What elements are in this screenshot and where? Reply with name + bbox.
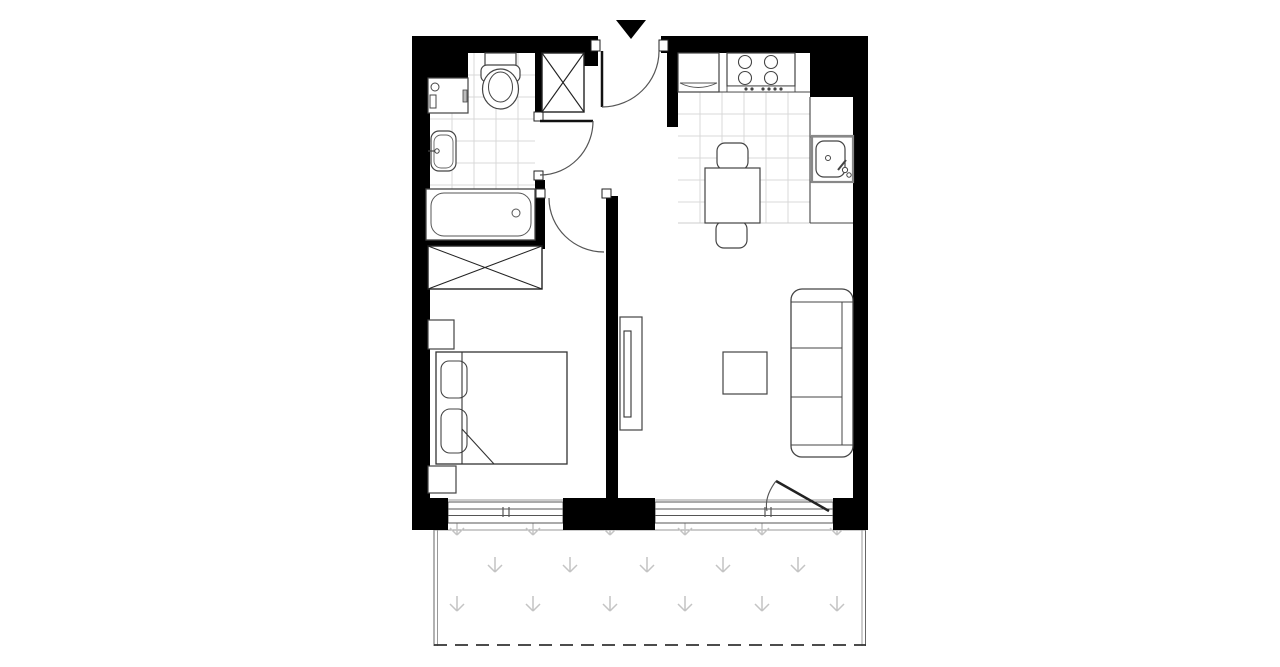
- stove-knob: [744, 87, 747, 90]
- stove-knob: [773, 87, 776, 90]
- stove-knob: [767, 87, 770, 90]
- corner-shaft: [412, 36, 468, 78]
- kitchen-faucet-spout: [847, 173, 851, 177]
- kitchen-faucet-base: [842, 167, 847, 172]
- kitchen-wall-stub: [667, 36, 678, 127]
- bottom-wall-mid-block: [563, 498, 655, 530]
- bedroom-window: [448, 502, 563, 523]
- fridge: [678, 53, 719, 92]
- floor-plan: [0, 0, 1280, 667]
- left-wall: [412, 36, 430, 502]
- top-right-block: [810, 36, 868, 97]
- bathroom-jamb-top: [534, 112, 543, 121]
- nightstand-bottom: [428, 466, 456, 493]
- stove: [727, 53, 795, 86]
- dining-chair-top: [717, 143, 748, 170]
- bedroom-jamb-left: [536, 189, 545, 198]
- washing-machine-door: [463, 90, 467, 102]
- sofa-body: [791, 289, 853, 457]
- stove-knob: [779, 87, 782, 90]
- stove-knob: [761, 87, 764, 90]
- bottom-wall-left-block: [412, 498, 448, 530]
- bed: [436, 352, 567, 464]
- nightstand-top: [428, 320, 454, 349]
- dining-chair-bottom: [716, 221, 747, 248]
- living-window: [655, 502, 833, 523]
- tv-screen: [624, 331, 631, 417]
- bedroom-living-wall: [606, 196, 618, 502]
- entrance-jamb-right: [659, 40, 668, 51]
- stove-knob: [750, 87, 753, 90]
- washing-machine-drawer: [430, 95, 436, 108]
- right-wall: [853, 36, 868, 502]
- dining-table: [705, 168, 760, 223]
- bedroom-jamb-right: [602, 189, 611, 198]
- toilet-bowl-outer: [483, 69, 519, 109]
- bathtub: [426, 189, 535, 240]
- bottom-wall-right-block: [833, 498, 868, 530]
- coffee-table: [723, 352, 767, 394]
- washbasin-tap: [435, 149, 439, 153]
- stove-knob-panel: [727, 86, 795, 92]
- floor-plan-drawing: [0, 0, 1280, 667]
- entrance-jamb-left: [591, 40, 600, 51]
